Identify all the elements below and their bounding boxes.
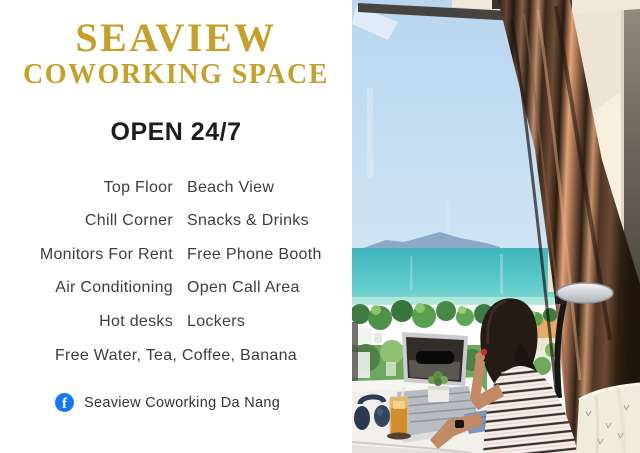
- beach-office-photo: [352, 0, 640, 453]
- feature-label: Lockers: [187, 313, 352, 331]
- feature-label: Beach View: [187, 179, 352, 197]
- feature-label: Hot desks: [0, 313, 173, 331]
- facebook-link[interactable]: f Seaview Coworking Da Nang: [55, 393, 280, 412]
- facebook-icon[interactable]: f: [55, 393, 74, 412]
- snack-in-hand: [481, 349, 487, 355]
- coaster: [387, 433, 411, 440]
- feature-label: Air Conditioning: [0, 279, 173, 297]
- feature-row: Monitors For Rent Free Phone Booth: [0, 238, 352, 272]
- facebook-handle: Seaview Coworking Da Nang: [84, 395, 280, 411]
- feature-footer: Free Water, Tea, Coffee, Banana: [0, 339, 352, 373]
- feature-row: Hot desks Lockers: [0, 305, 352, 339]
- feature-list: Top Floor Beach View Chill Corner Snacks…: [0, 171, 352, 372]
- brand-title-line1: SEAVIEW: [0, 0, 352, 59]
- feature-row: Air Conditioning Open Call Area: [0, 272, 352, 306]
- open-hours: OPEN 24/7: [0, 118, 352, 147]
- brand-title-line2: COWORKING SPACE: [0, 59, 352, 91]
- feature-label: Chill Corner: [0, 212, 173, 230]
- feature-label: Free Phone Booth: [187, 246, 352, 264]
- info-panel: SEAVIEW COWORKING SPACE OPEN 24/7 Top Fl…: [0, 0, 352, 453]
- flyer-canvas: SEAVIEW COWORKING SPACE OPEN 24/7 Top Fl…: [0, 0, 640, 453]
- feature-label: Snacks & Drinks: [187, 212, 352, 230]
- feature-label: Monitors For Rent: [0, 246, 173, 264]
- feature-label: Top Floor: [0, 179, 173, 197]
- feature-row: Top Floor Beach View: [0, 171, 352, 205]
- smartwatch: [455, 420, 464, 428]
- feature-row: Chill Corner Snacks & Drinks: [0, 205, 352, 239]
- feature-label: Open Call Area: [187, 279, 352, 297]
